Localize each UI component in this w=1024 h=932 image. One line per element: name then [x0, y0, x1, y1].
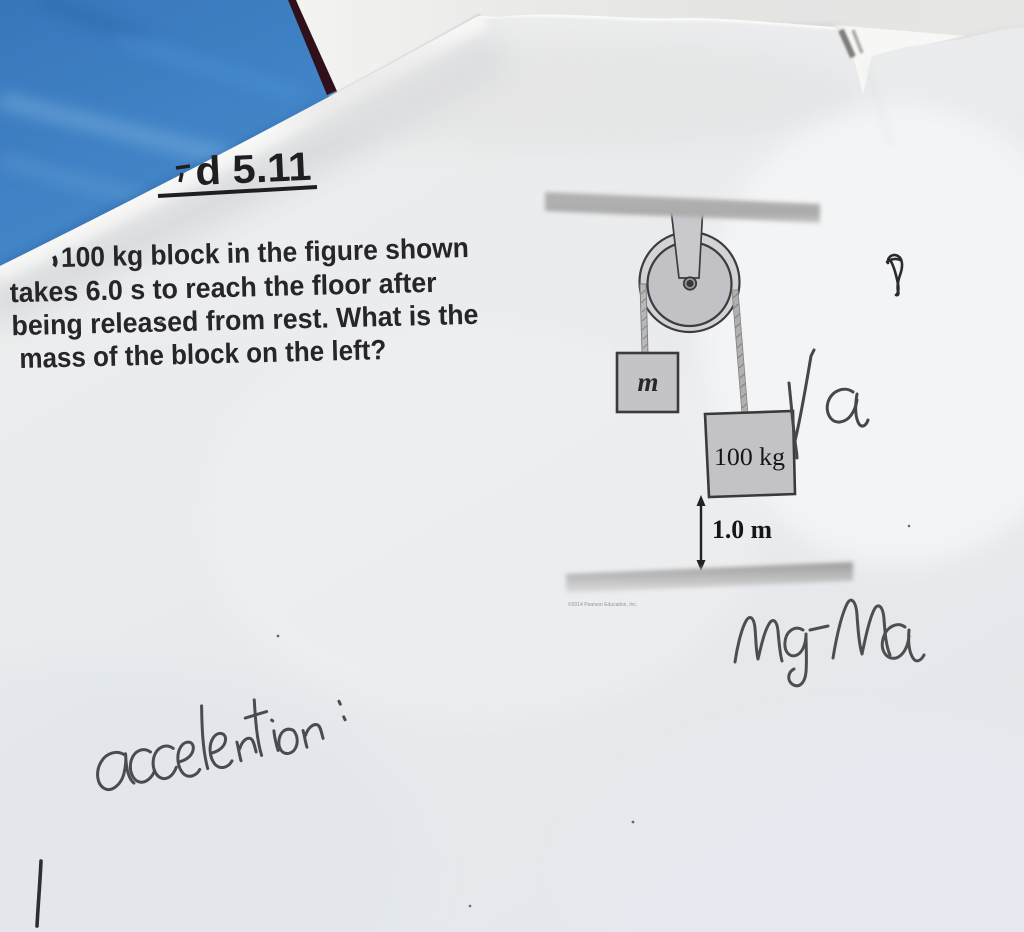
- svg-text:100 kg: 100 kg: [714, 444, 786, 471]
- svg-text:1.0 m: 1.0 m: [712, 515, 772, 544]
- svg-text:m: m: [637, 367, 658, 397]
- svg-text:©2014 Pearson Education, Inc.: ©2014 Pearson Education, Inc.: [568, 601, 637, 608]
